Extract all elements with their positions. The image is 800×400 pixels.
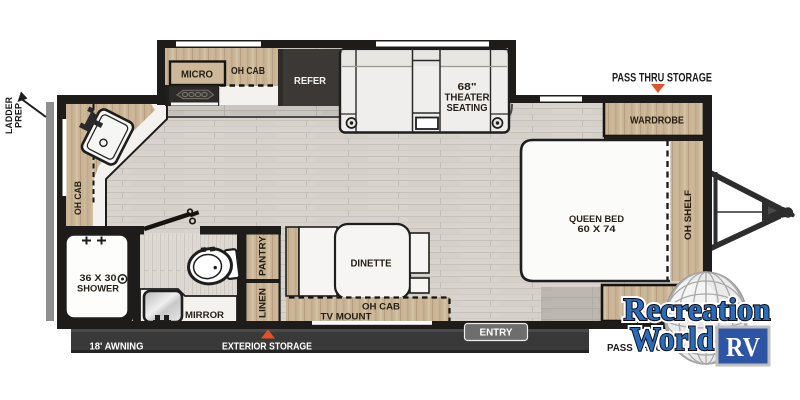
svg-text:MIRROR: MIRROR — [185, 310, 224, 321]
svg-text:TV MOUNT: TV MOUNT — [321, 312, 372, 323]
svg-text:THEATER: THEATER — [445, 93, 491, 104]
svg-text:PASS THRU STORAGE: PASS THRU STORAGE — [612, 73, 712, 85]
svg-text:ENTRY: ENTRY — [480, 328, 513, 339]
svg-text:WARDROBE: WARDROBE — [630, 116, 684, 127]
svg-text:RV: RV — [726, 332, 760, 362]
svg-text:OH SHELF: OH SHELF — [683, 190, 694, 240]
svg-text:World: World — [630, 321, 714, 358]
svg-text:SHOWER: SHOWER — [77, 284, 119, 295]
svg-text:18' AWNING: 18' AWNING — [90, 342, 144, 353]
svg-text:EXTERIOR STORAGE: EXTERIOR STORAGE — [222, 342, 312, 353]
svg-text:REFER: REFER — [294, 75, 326, 87]
svg-text:DINETTE: DINETTE — [351, 259, 392, 270]
svg-text:68": 68" — [458, 82, 477, 93]
svg-text:OH CAB: OH CAB — [231, 66, 265, 77]
svg-text:MICRO: MICRO — [181, 70, 213, 81]
svg-text:OH CAB: OH CAB — [73, 181, 84, 215]
svg-text:60 X 74: 60 X 74 — [578, 224, 617, 235]
svg-text:PANTRY: PANTRY — [258, 236, 268, 276]
svg-text:36 X 30: 36 X 30 — [80, 273, 117, 284]
svg-text:PREP: PREP — [14, 102, 25, 128]
svg-text:SEATING: SEATING — [447, 103, 488, 114]
svg-text:LINEN: LINEN — [258, 288, 268, 318]
